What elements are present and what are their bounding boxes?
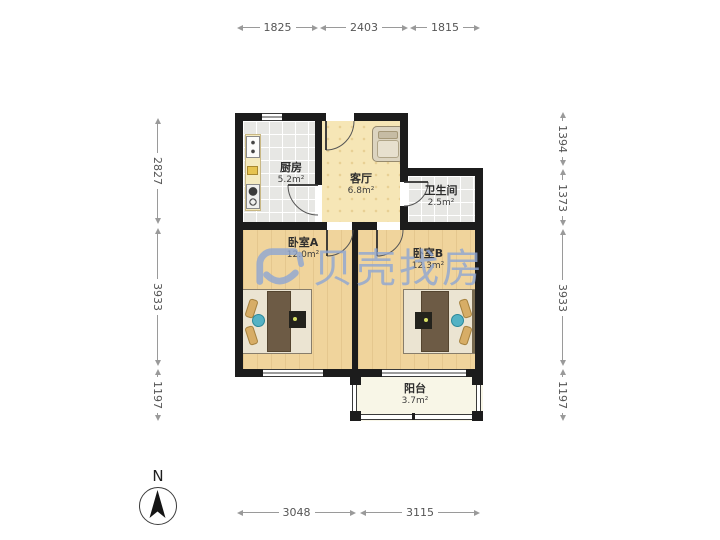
room-area: 5.2m² xyxy=(278,175,305,187)
balcony-label: 阳台 3.7m² xyxy=(402,382,429,408)
room-area: 6.8m² xyxy=(348,186,375,198)
kitchen-label: 厨房 5.2m² xyxy=(278,161,305,187)
room-name: 客厅 xyxy=(348,172,375,186)
room-name: 卫生间 xyxy=(425,184,458,198)
kitchen-door xyxy=(288,185,318,215)
room-name: 阳台 xyxy=(402,382,429,396)
entry-door xyxy=(326,121,354,150)
watermark: 贝壳找房 xyxy=(254,243,485,295)
room-area: 3.7m² xyxy=(402,396,429,408)
beike-shell-logo-icon xyxy=(254,243,306,295)
living-room-label: 客厅 6.8m² xyxy=(348,172,375,198)
watermark-text: 贝壳找房 xyxy=(313,249,485,289)
room-name: 厨房 xyxy=(278,161,305,175)
room-area: 2.5m² xyxy=(425,198,458,210)
bathroom-label: 卫生间 2.5m² xyxy=(425,184,458,210)
